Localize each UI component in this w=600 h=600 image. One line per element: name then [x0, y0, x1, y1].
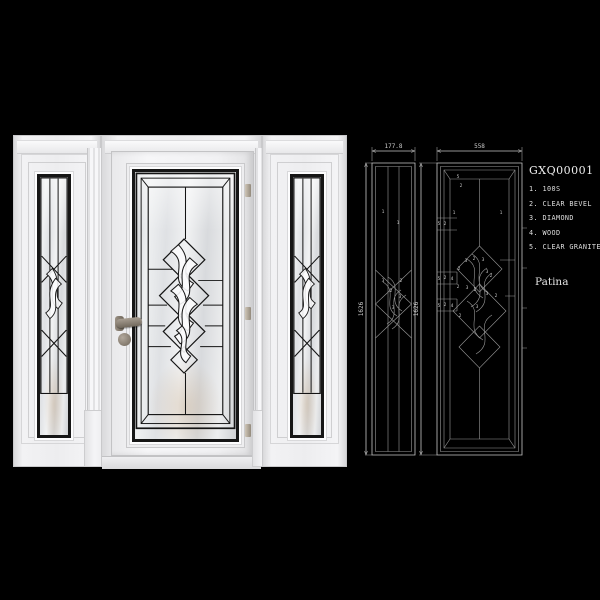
legend-item: 3. DIAMOND — [529, 214, 599, 222]
glass-material-number: 5 — [457, 174, 460, 180]
sidelight-drawing: 177.8 1626 1132233 — [358, 143, 415, 455]
glass-material-number: 2 — [458, 266, 461, 272]
door-unit-photo — [0, 0, 360, 600]
door-deadbolt[interactable] — [118, 333, 131, 346]
door-glass-drawing: 558 1626 5211523232325242323252432 — [413, 143, 527, 455]
glass-material-number: 3 — [382, 278, 385, 284]
door-glass — [135, 172, 236, 439]
legend-item: 2. CLEAR BEVEL — [529, 200, 599, 208]
door-came-pattern — [135, 172, 236, 430]
glass-material-number: 3 — [482, 257, 485, 263]
door-height-dimension: 1626 — [413, 301, 420, 316]
glass-material-number: 2 — [444, 302, 447, 308]
door-width-dimension: 558 — [474, 143, 485, 150]
right-sidelight-glass — [293, 177, 321, 435]
legend-items: 1. 100S2. CLEAR BEVEL3. DIAMOND4. WOOD5.… — [529, 185, 599, 251]
sidelight-height-dimension: 1626 — [358, 301, 365, 316]
door-hinge-top — [245, 184, 251, 197]
legend-item: 4. WOOD — [529, 229, 599, 237]
glass-material-number: 3 — [486, 269, 489, 275]
door-slab — [111, 151, 254, 456]
right-sidelight — [262, 135, 347, 467]
glass-material-number: 4 — [451, 303, 454, 309]
legend: GXQ00001 1. 100S2. CLEAR BEVEL3. DIAMOND… — [529, 164, 599, 288]
glass-material-number: 2 — [460, 183, 463, 189]
door-glass-frame — [132, 169, 239, 442]
glass-material-number: 1 — [382, 209, 385, 215]
glass-material-number: 3 — [392, 305, 395, 311]
finish-label: Patina — [535, 276, 599, 288]
glass-material-number: 3 — [399, 294, 402, 300]
glass-material-number: 3 — [465, 258, 468, 264]
glass-material-number: 2 — [444, 275, 447, 281]
legend-item: 5. CLEAR GRANITE — [529, 243, 599, 251]
left-sidelight-came-pattern — [40, 177, 68, 394]
glass-material-number: 1 — [397, 220, 400, 226]
glass-material-number: 2 — [457, 284, 460, 290]
glass-material-number: 4 — [451, 276, 454, 282]
glass-material-number: 5 — [438, 276, 441, 282]
sidelight-width-dimension: 177.8 — [384, 143, 402, 150]
glass-material-number: 5 — [438, 303, 441, 309]
glass-material-number: 5 — [438, 221, 441, 227]
glass-material-number: 3 — [486, 291, 489, 297]
right-sidelight-glass-frame — [290, 174, 324, 438]
door-hinge-middle — [245, 307, 251, 320]
door-sill — [102, 456, 261, 469]
glass-material-number: 2 — [473, 256, 476, 262]
glass-material-number: 2 — [444, 221, 447, 227]
product-sheet: 177.8 1626 1132233 558 1626 — [0, 0, 600, 600]
glass-material-number: 2 — [459, 313, 462, 319]
glass-material-number: 2 — [495, 293, 498, 299]
legend-item: 1. 100S — [529, 185, 599, 193]
door-frame — [101, 135, 262, 467]
left-sidelight-head-casing — [17, 140, 97, 154]
technical-drawings: 177.8 1626 1132233 558 1626 — [355, 138, 535, 470]
glass-material-number: 1 — [500, 210, 503, 216]
right-sidelight-came-pattern — [293, 177, 321, 394]
product-code: GXQ00001 — [529, 164, 599, 177]
glass-material-number: 1 — [453, 210, 456, 216]
left-sidelight-glass-frame — [37, 174, 71, 438]
glass-material-number: 2 — [490, 273, 493, 279]
door-hinge-bottom — [245, 424, 251, 437]
glass-material-number: 2 — [474, 287, 477, 293]
glass-material-number: 3 — [466, 285, 469, 291]
glass-material-number: 2 — [390, 288, 393, 294]
glass-material-number: 3 — [476, 304, 479, 310]
right-sidelight-head-casing — [266, 140, 343, 154]
sidelight-material-labels: 1132233 — [382, 209, 403, 311]
glass-material-number: 2 — [400, 278, 403, 284]
left-sidelight-glass — [40, 177, 68, 435]
